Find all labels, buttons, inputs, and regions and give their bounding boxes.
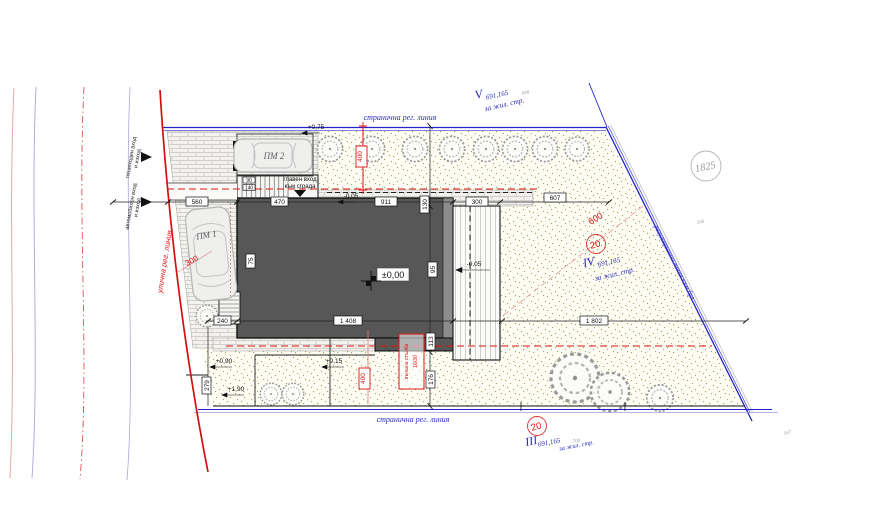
side-regulation-label-top: странична рег. линия [364, 113, 437, 122]
dim-130: 130 [422, 199, 429, 210]
dim-560: 560 [192, 199, 203, 206]
tree-icon [502, 136, 527, 161]
tree-icon [317, 136, 342, 161]
parcel-v-roman: V [474, 86, 486, 102]
dim-1408: 1 408 [340, 318, 357, 325]
dim-911: 911 [381, 199, 392, 206]
gray-num-166: 166 [696, 219, 705, 226]
car-pm1 [184, 206, 237, 302]
pedestrian-entrance: пешеходен вход и изход [125, 136, 152, 180]
building-light-strip [443, 198, 453, 338]
street-regulation-label: улична рег. линия [155, 230, 174, 295]
main-entrance-label-1: главен вход [283, 177, 317, 183]
stair-note-line2: 16/30 [413, 355, 419, 368]
dim-113: 113 [428, 336, 435, 347]
gray-num-698: 698 [521, 90, 530, 97]
level-plus075: +0,75 [308, 124, 325, 131]
tree-icon [402, 136, 427, 161]
site-plan-canvas: 560 470 911 300 607 240 1 408 1 802 130 … [0, 0, 869, 527]
red-dim-400-bottom: 400 [360, 373, 367, 384]
side-regulation-label-bottom: странична рег. линия [377, 415, 450, 424]
dim-140: 140 [245, 186, 254, 192]
parcel-number-badge: 1825 [691, 151, 721, 181]
level-plus190: +1,90 [228, 386, 245, 393]
tree-icon [439, 136, 464, 161]
site-plan-drawing: 560 470 911 300 607 240 1 408 1 802 130 … [0, 0, 869, 527]
dim-607: 607 [550, 195, 561, 202]
entrance-arrow-icon [141, 152, 152, 162]
shrub-icon [260, 383, 282, 405]
level-minus005-deck: -0,05 [467, 261, 482, 268]
stair-note-line1: външна стълба [404, 343, 410, 379]
shrub-icon [282, 383, 304, 405]
dim-95: 95 [430, 266, 437, 274]
neighbor-parcel-v: V 691,165 за жил. стр. [474, 78, 526, 115]
tree-icon [565, 137, 589, 161]
setback-20-bottom: 20 [530, 420, 543, 433]
dim-1802: 1 802 [586, 318, 603, 325]
entrance-arrow-icon [141, 197, 152, 207]
dim-300: 300 [472, 199, 483, 206]
level-minus005-top: -0,05 [344, 193, 359, 200]
tree-icon [473, 136, 498, 161]
setback-circle-bottom: 20 [528, 417, 547, 436]
dim-240: 240 [217, 318, 228, 325]
gray-num-167: 167 [783, 430, 792, 437]
deck-terrace [453, 206, 500, 360]
tree-icon [647, 385, 673, 411]
level-plus090: +0,90 [216, 358, 233, 365]
dim-470: 470 [274, 199, 285, 206]
parking-pm2-label: ПМ 2 [263, 151, 285, 161]
main-entrance-label-2: към сграда [285, 184, 317, 190]
dim-176: 176 [428, 374, 435, 385]
level-plus015: +0,15 [326, 358, 343, 365]
street-contour-lines [10, 87, 130, 480]
dim-279: 279 [204, 380, 211, 391]
tree-icon [591, 373, 629, 411]
level-zero: ±0,00 [382, 270, 404, 280]
dim-75: 75 [248, 257, 255, 265]
tree-icon [532, 136, 557, 161]
red-dim-400-top: 400 [357, 151, 364, 162]
dim-90: 90 [246, 178, 252, 184]
